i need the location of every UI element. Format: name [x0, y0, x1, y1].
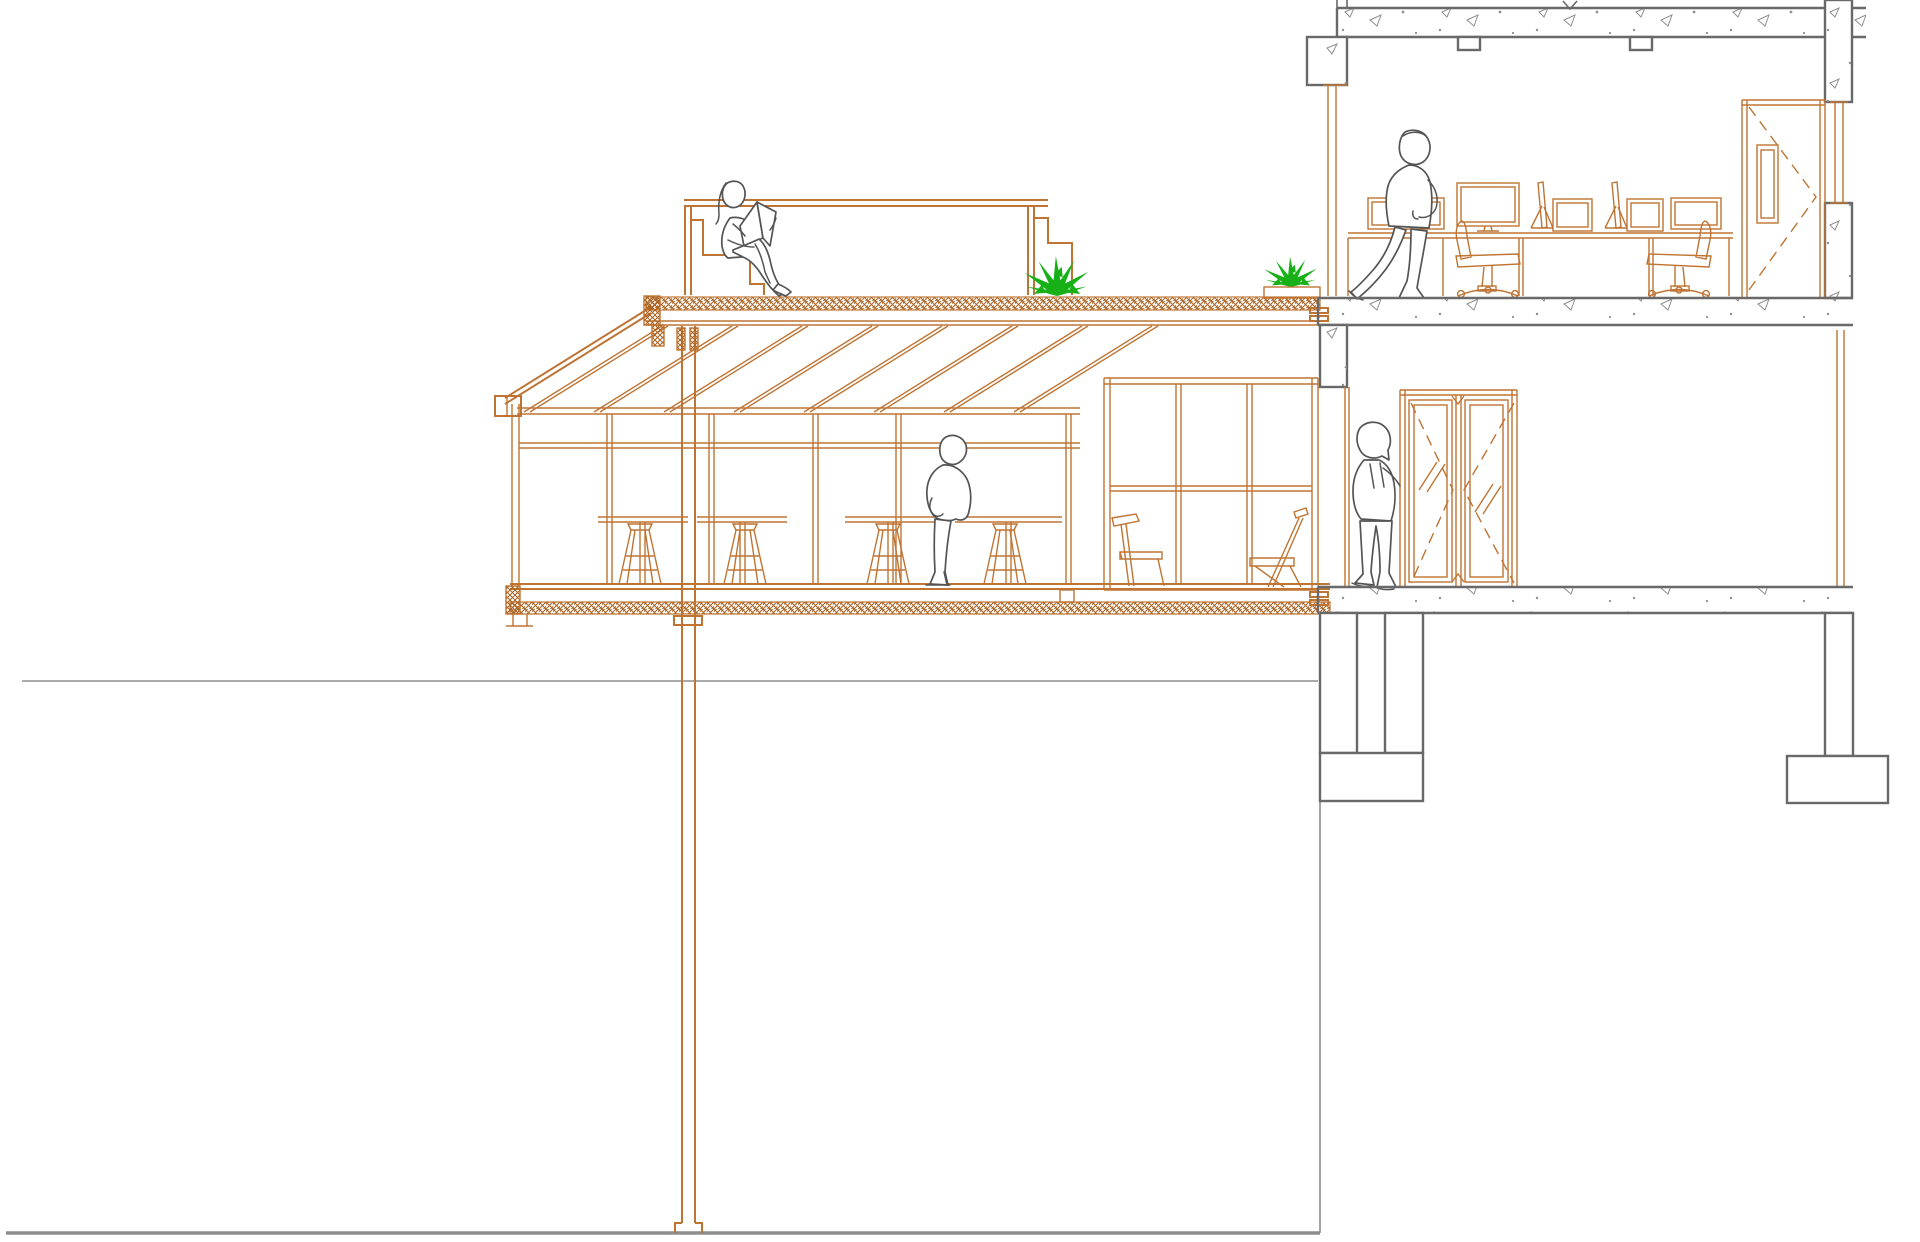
monitor-side-1: [1531, 182, 1592, 231]
roof-planter: [1264, 257, 1320, 298]
person-walking: [1349, 130, 1437, 300]
ground-slab: [1318, 587, 1853, 613]
foundation-wall-left-a: [1320, 613, 1357, 753]
column-floor-plate: [674, 616, 702, 625]
beam-stub: [1458, 37, 1480, 50]
footing-left: [1320, 753, 1423, 801]
foundations: [1320, 613, 1888, 803]
stander-head: [940, 435, 967, 464]
glazed-wall-frame: [512, 404, 1080, 586]
foundation-wall-right: [1825, 613, 1853, 756]
person-at-door: [1352, 422, 1400, 589]
site-lines: [6, 681, 1320, 1233]
monitor-large: [1457, 183, 1519, 231]
foundation-wall-left-b: [1385, 613, 1423, 753]
glass-marks: [1419, 462, 1501, 514]
lower-left-pier: [1320, 325, 1349, 587]
office-floor-slab: [1318, 298, 1853, 325]
roof-terrace: [644, 181, 1328, 346]
upper-office: [1307, 0, 1866, 325]
door-swing-right: [1464, 403, 1514, 583]
door-leaf-left: [1409, 400, 1452, 582]
person-reading: [716, 181, 791, 296]
lower-room: [1318, 325, 1853, 613]
roof-glazing-bars: [524, 326, 1158, 412]
double-door: [1400, 390, 1517, 587]
floor-end-block: [506, 586, 520, 614]
roof-slab: [1337, 0, 1866, 50]
main-column: [674, 326, 702, 1233]
side-chair: [1112, 514, 1164, 586]
terrace-deck: [644, 296, 1320, 346]
reader-head: [722, 181, 745, 207]
section-drawing-canvas: Architectural cross-section drawing: two…: [0, 0, 1920, 1242]
planter-box: [1264, 287, 1320, 298]
wall-window: [1830, 102, 1848, 203]
beam-stub: [1630, 37, 1652, 50]
monitor-flat-2: [1671, 198, 1721, 229]
footing-right: [1787, 756, 1888, 803]
office-door: [1742, 100, 1825, 297]
office-left-wall: [1307, 37, 1347, 296]
reader-shoe: [773, 284, 791, 296]
deck-end-block: [644, 296, 660, 325]
eave-beam: [495, 396, 521, 416]
person-standing: [926, 435, 971, 585]
lower-right-glazing: [1837, 330, 1844, 587]
door-leaf-right: [1465, 400, 1508, 582]
conservatory: [495, 307, 1330, 1233]
door-vision-panel: [1757, 145, 1778, 223]
office-right-wall: [1825, 0, 1852, 298]
door-person-head: [1357, 422, 1390, 460]
bar-tables: [598, 517, 1062, 584]
deck-bearing-block: [652, 325, 664, 346]
section-drawing: [0, 0, 1920, 1242]
monitor-side-2: [1605, 182, 1663, 231]
door-swing: [1749, 107, 1816, 290]
folding-chair: [1250, 508, 1308, 587]
post-pedestal: [1060, 590, 1074, 602]
